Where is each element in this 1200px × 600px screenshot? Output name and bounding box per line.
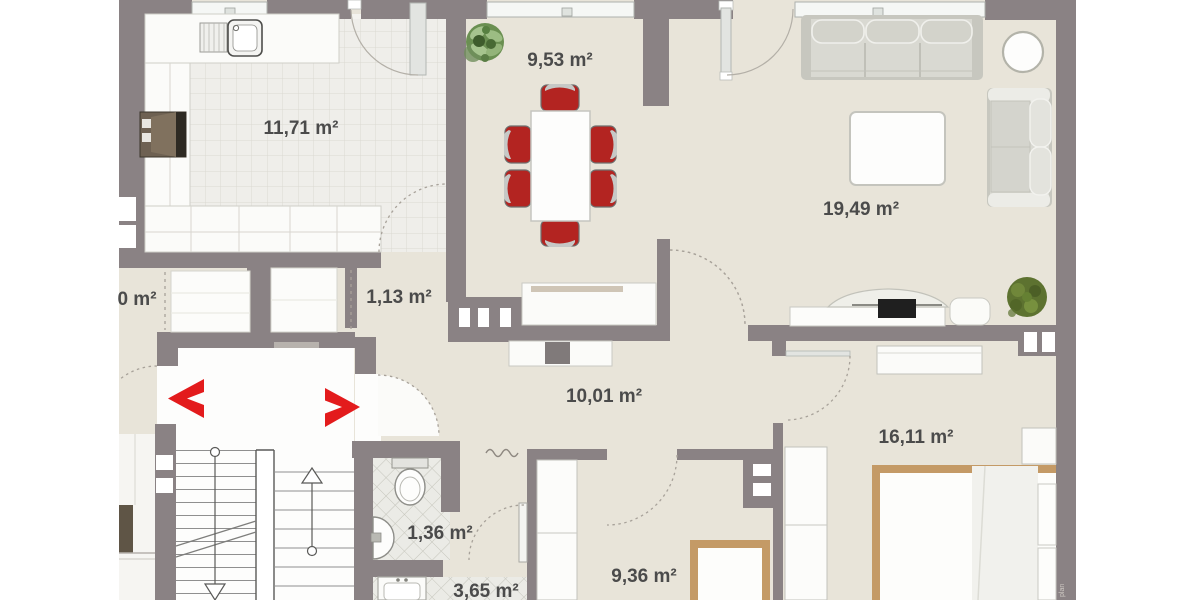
svg-text:11,71 m²: 11,71 m²: [264, 118, 339, 139]
svg-text:10,01 m²: 10,01 m²: [566, 386, 642, 407]
svg-text:16,11 m²: 16,11 m²: [879, 427, 954, 448]
svg-text:19,49 m²: 19,49 m²: [823, 199, 899, 220]
svg-text:3,65 m²: 3,65 m²: [453, 581, 518, 600]
svg-text:plan: plan: [1059, 584, 1066, 597]
svg-text:1,13 m²: 1,13 m²: [366, 287, 431, 308]
svg-text:9,53 m²: 9,53 m²: [527, 50, 592, 71]
svg-text:0 m²: 0 m²: [117, 289, 156, 310]
svg-text:1,36 m²: 1,36 m²: [407, 523, 472, 544]
svg-text:9,36 m²: 9,36 m²: [611, 566, 676, 587]
